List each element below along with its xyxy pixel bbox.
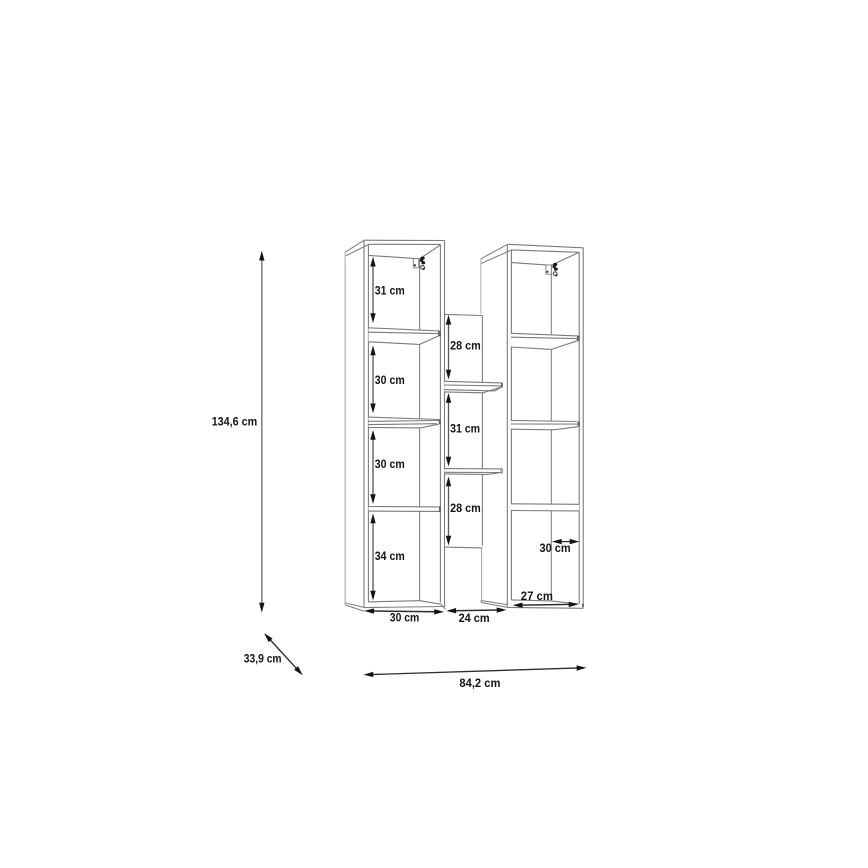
svg-text:27 cm: 27 cm [521,589,553,603]
svg-text:134,6 cm: 134,6 cm [212,415,258,429]
svg-text:31 cm: 31 cm [375,284,405,298]
svg-text:28 cm: 28 cm [450,501,481,515]
svg-text:30 cm: 30 cm [375,457,405,471]
svg-text:30 cm: 30 cm [375,373,405,387]
svg-text:33,9 cm: 33,9 cm [244,652,282,666]
svg-text:31 cm: 31 cm [450,421,480,435]
svg-text:28 cm: 28 cm [450,339,481,353]
svg-text:30 cm: 30 cm [390,610,420,624]
svg-text:24 cm: 24 cm [459,611,490,625]
svg-text:30 cm: 30 cm [540,541,571,555]
svg-text:84,2 cm: 84,2 cm [459,676,500,690]
svg-text:34 cm: 34 cm [375,549,405,563]
